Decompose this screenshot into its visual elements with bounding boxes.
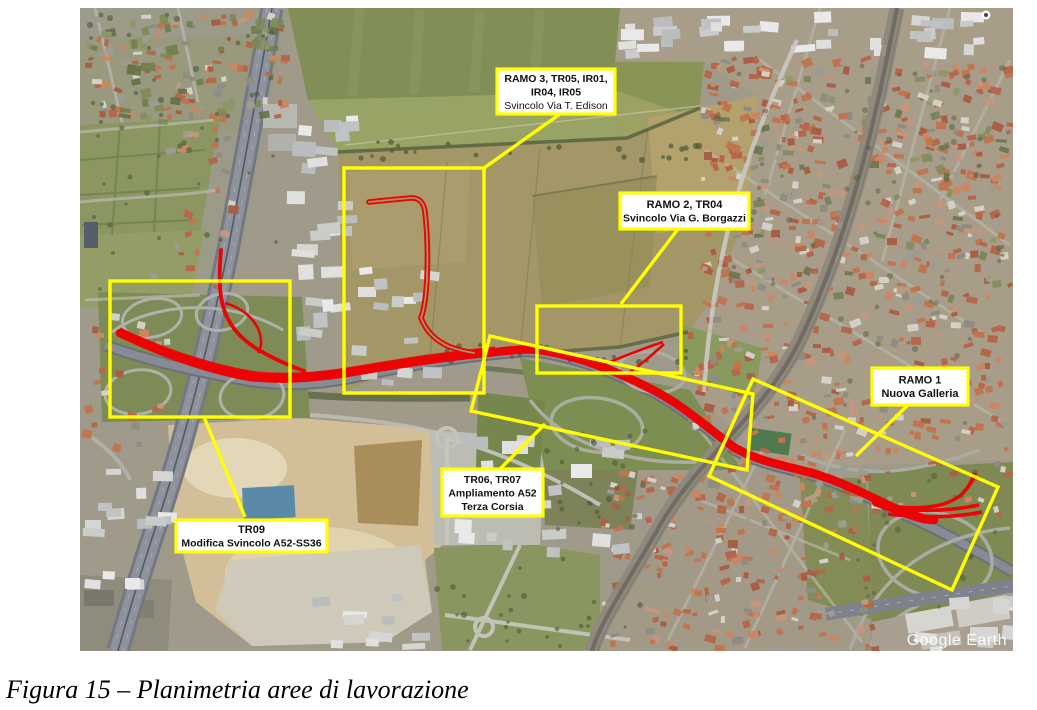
svg-text:Nuova Galleria: Nuova Galleria <box>881 388 959 400</box>
svg-text:Ampliamento A52: Ampliamento A52 <box>448 487 536 499</box>
svg-text:Svincolo Via G. Borgazzi: Svincolo Via G. Borgazzi <box>623 213 746 225</box>
svg-text:RAMO 3, TR05, IR01,: RAMO 3, TR05, IR01, <box>504 73 607 85</box>
svg-text:Terza Corsia: Terza Corsia <box>461 501 523 513</box>
svg-text:TR06, TR07: TR06, TR07 <box>464 474 521 486</box>
svg-text:Svincolo Via T. Edison: Svincolo Via T. Edison <box>504 100 608 112</box>
svg-text:Google Earth: Google Earth <box>907 632 1007 649</box>
svg-text:TR09: TR09 <box>238 524 265 536</box>
svg-text:Modifica Svincolo A52-SS36: Modifica Svincolo A52-SS36 <box>181 538 321 550</box>
svg-text:RAMO 2, TR04: RAMO 2, TR04 <box>647 199 724 211</box>
svg-text:RAMO 1: RAMO 1 <box>899 375 942 387</box>
svg-text:IR04, IR05: IR04, IR05 <box>531 86 581 98</box>
